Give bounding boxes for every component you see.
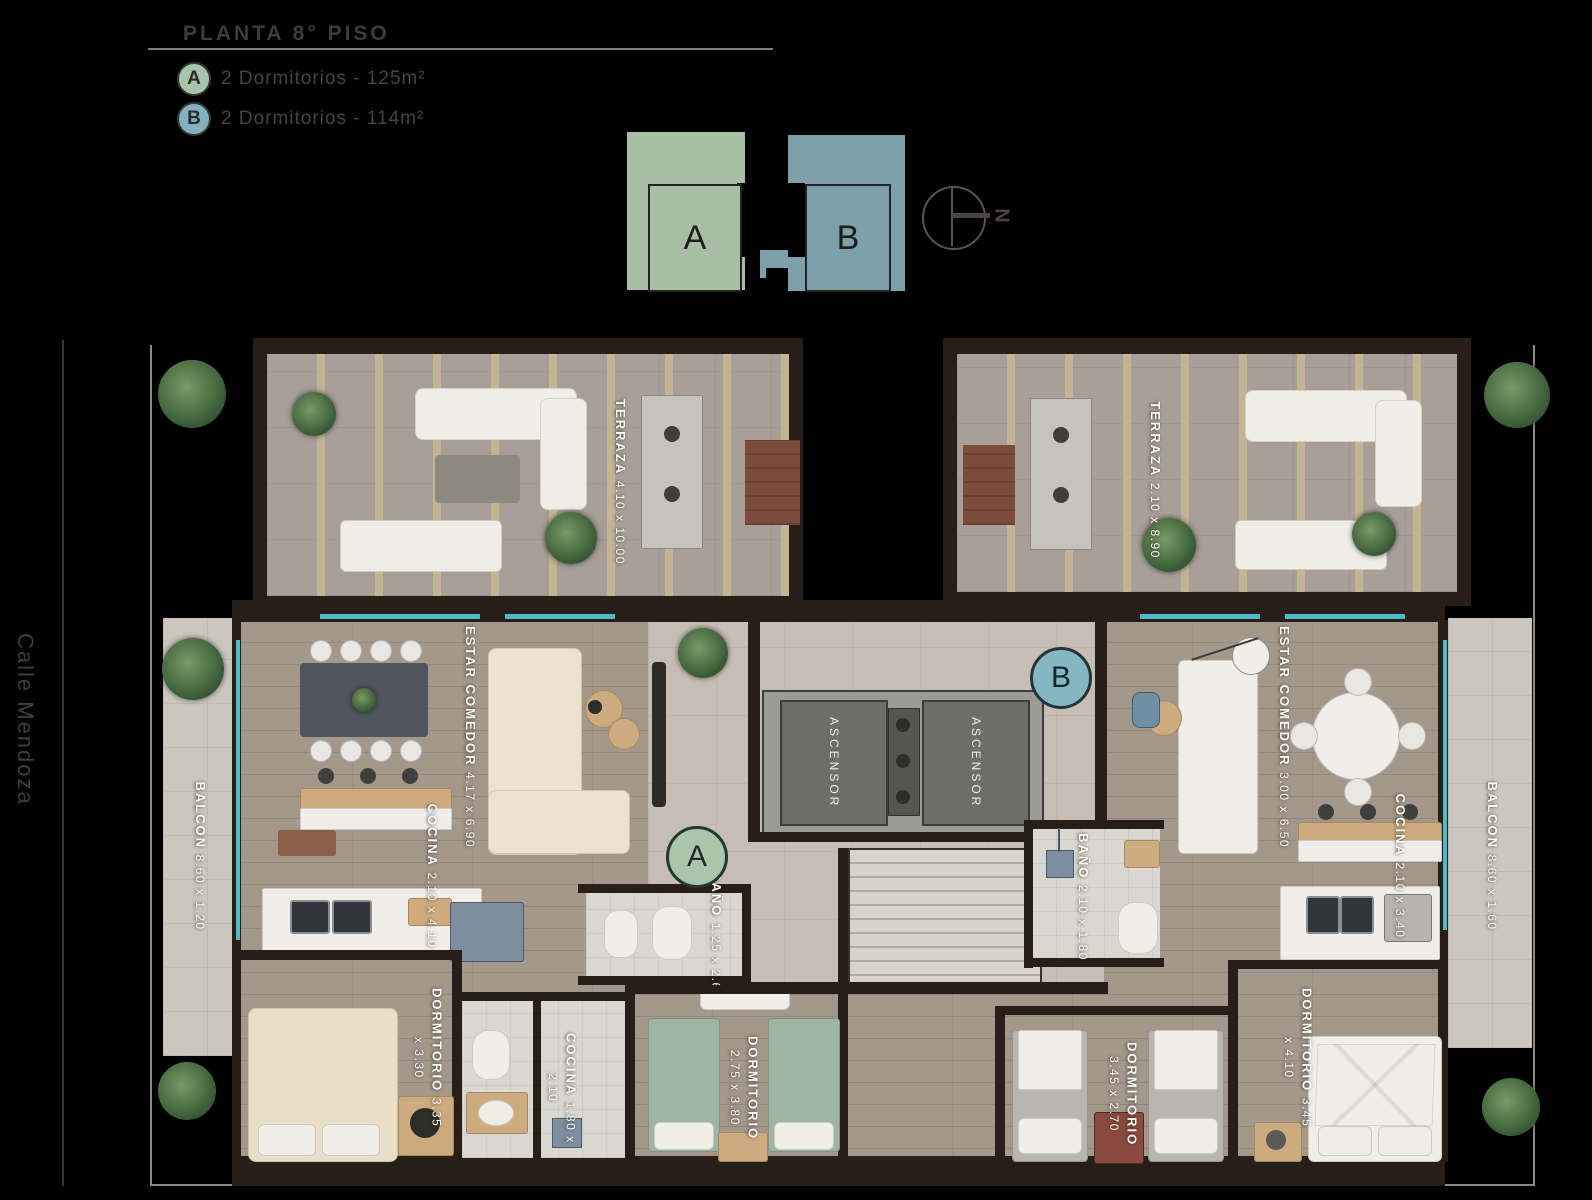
bath-b-wall-bottom (1024, 958, 1164, 967)
plant-icon (545, 512, 597, 564)
sofa-b (1178, 660, 1258, 854)
chair-icon (1344, 778, 1372, 806)
pillow (258, 1124, 316, 1156)
sink-icon (1306, 896, 1340, 934)
pillow (1154, 1118, 1218, 1154)
chair-icon (400, 640, 422, 662)
pillow (1318, 1126, 1372, 1156)
keyplan-core-notch2 (737, 183, 805, 257)
chair-icon (1290, 722, 1318, 750)
chair-icon (310, 740, 332, 762)
room-label-terraza-b: TERRAZA 2.10 x 8.90 (1146, 401, 1164, 559)
keyplan-unit-a-room: A (648, 184, 742, 292)
kitchen-a-counter-accent (278, 830, 336, 856)
chair-icon (370, 640, 392, 662)
chair-icon (310, 640, 332, 662)
window-glass-right (1443, 640, 1447, 930)
chair-icon (340, 640, 362, 662)
bed-b2-quilt (1315, 1044, 1436, 1126)
machinery-pulley-icon (896, 754, 910, 768)
room-label-dormitorio-a2: DORMITORIO 2.75 x 3.80 (726, 1032, 761, 1144)
terrace-a-table (435, 455, 520, 503)
pillow (1018, 1118, 1082, 1154)
stool-icon (360, 768, 376, 784)
bbq-burner-icon (1053, 487, 1069, 503)
legend-marker-b: B (177, 102, 211, 136)
elevator-cab-1: ASCENSOR (780, 700, 888, 826)
terrace-a-sofa-3 (340, 520, 502, 572)
pillow (1378, 1126, 1432, 1156)
table-plant-icon (352, 688, 376, 712)
room-label-estar-b: ESTAR COMEDOR 3.00 x 6.50 (1275, 626, 1293, 848)
window-glass (320, 614, 480, 619)
plant-icon (1482, 1078, 1540, 1136)
window-glass (1285, 614, 1405, 619)
north-arrow-hline (952, 213, 990, 218)
toilet-icon (472, 1030, 510, 1080)
shower-head-icon (1046, 850, 1074, 878)
room-label-bano-a: BAÑO 1.25 x 2.60 (707, 871, 725, 999)
stool-icon (402, 768, 418, 784)
side-table-a (608, 718, 640, 750)
room-label-dormitorio-b2: DORMITORIO 3.45 x 4.10 (1280, 987, 1315, 1129)
room-label-cocina-small: COCINA 1.80 x 2.10 (544, 1032, 579, 1144)
bedroom-b1-wall-left (995, 1006, 1005, 1162)
core-wall-under-elevators (748, 832, 1048, 842)
terrace-b-bbq (1030, 398, 1092, 550)
machinery-pulley-icon (896, 718, 910, 732)
lamp-icon (1266, 1130, 1286, 1150)
pillow (322, 1124, 380, 1156)
street-edge-line (62, 340, 64, 1186)
basin-icon (478, 1100, 514, 1126)
bbq-burner-icon (1053, 427, 1069, 443)
plant-icon (1484, 362, 1550, 428)
plant-icon (158, 1062, 216, 1120)
terrace-a-bbq (641, 395, 703, 549)
stair-wall (838, 848, 848, 986)
legend-item-b: B 2 Dormitorios - 114m² (177, 102, 424, 136)
page-title: PLANTA 8° PISO (183, 22, 390, 46)
unit-marker-b: B (1030, 647, 1092, 709)
bath-b-wall-top (1024, 820, 1164, 829)
ensuite-wall-right (625, 985, 635, 1162)
bedroom-b1-wall-top (995, 1006, 1237, 1015)
stool-icon (1318, 804, 1334, 820)
shower-pipe (1058, 828, 1060, 852)
bidet-icon (604, 910, 638, 958)
title-underline (148, 48, 773, 50)
sink-icon (332, 900, 372, 934)
bed-b1-cover-2 (1154, 1030, 1218, 1090)
core-wall-left (748, 620, 760, 838)
floor-plan-canvas: PLANTA 8° PISO A 2 Dormitorios - 125m² B… (0, 0, 1592, 1200)
stairs (848, 848, 1042, 990)
floor-lamp-icon (588, 700, 602, 714)
room-label-balcon-a: BALCON 8.60 x 1.20 (191, 781, 209, 930)
plant-icon (292, 392, 336, 436)
unit-marker-a: A (666, 826, 728, 888)
bath-a-wall-right (742, 884, 751, 985)
room-label-cocina-a: COCINA 2.10 x 4.10 (423, 804, 441, 949)
stool-icon (1360, 804, 1376, 820)
north-label: N (990, 208, 1013, 222)
chair-icon (1398, 722, 1426, 750)
keyplan-unit-b-room: B (805, 184, 891, 292)
bedroom-a2-wall-top (625, 985, 847, 994)
ensuite-wall-mid (533, 1000, 541, 1160)
lot-line-left (150, 345, 152, 1186)
plant-icon (678, 628, 728, 678)
room-label-dormitorio-a1: DORMITORIO 3.35 x 3.30 (410, 987, 445, 1129)
bbq-burner-icon (664, 426, 680, 442)
ensuite-wall-top (455, 992, 633, 1001)
toilet-icon (1118, 902, 1158, 954)
room-label-bano-b: BAÑO 2.10 x 1.80 (1074, 833, 1092, 961)
legend-item-a: A 2 Dormitorios - 125m² (177, 62, 426, 96)
dining-table-b (1312, 692, 1400, 780)
window-glass (505, 614, 615, 619)
window-glass (1140, 614, 1260, 619)
pillow (774, 1122, 834, 1150)
bedroom-a-wall-top (232, 950, 460, 960)
terrace-a-sofa-2 (540, 398, 587, 510)
room-label-cocina-b: COCINA 2.10 x 3.40 (1391, 794, 1409, 939)
keyplan-notch3 (766, 268, 788, 292)
bedroom-b2-wall-top (1228, 960, 1445, 969)
tv-panel-a (652, 662, 666, 807)
sink-icon (1340, 896, 1374, 934)
sofa-a-chaise (488, 790, 630, 854)
window-glass-left (236, 640, 240, 940)
chair-icon (400, 740, 422, 762)
bed-b1-cover-1 (1018, 1030, 1082, 1090)
terrace-b-sofa-2 (1375, 400, 1422, 507)
north-arrow-icon (922, 186, 986, 250)
elevator-cab-2: ASCENSOR (922, 700, 1030, 826)
terrace-b-brick-column (963, 445, 1015, 525)
kitchen-b-island (1298, 840, 1442, 862)
plant-icon (1352, 512, 1396, 556)
machinery-pulley-icon (896, 790, 910, 804)
stool-icon (318, 768, 334, 784)
pillow (654, 1122, 714, 1150)
terrace-a-brick-column (745, 440, 800, 525)
chair-icon (1344, 668, 1372, 696)
room-label-balcon-b: BALCON 8.60 x 1.60 (1483, 781, 1501, 930)
room-label-estar-a: ESTAR COMEDOR 4.17 x 6.90 (461, 626, 479, 848)
lot-line-right (1533, 345, 1535, 1186)
legend-marker-a: A (177, 62, 211, 96)
room-label-terraza-a: TERRAZA 4.10 x 10.00 (611, 399, 629, 565)
legend-label-a: 2 Dormitorios - 125m² (221, 68, 426, 90)
plant-icon (158, 360, 226, 428)
vanity-b (1124, 840, 1160, 868)
bedroom-b-wall-mid (1228, 960, 1238, 1162)
keyplan-b-letter: B (837, 219, 860, 258)
keyplan-a-letter: A (684, 219, 707, 258)
lounge-chair-b (1132, 692, 1160, 728)
street-label: Calle Mendoza (12, 633, 38, 893)
room-label-dormitorio-b1: DORMITORIO 3.45 x 2.70 (1105, 1041, 1140, 1147)
plant-icon (162, 638, 224, 700)
toilet-icon (652, 906, 692, 960)
chair-icon (370, 740, 392, 762)
bbq-burner-icon (664, 486, 680, 502)
chair-icon (340, 740, 362, 762)
legend-label-b: 2 Dormitorios - 114m² (221, 108, 424, 130)
sink-icon (290, 900, 330, 934)
bath-b-wall-left (1024, 820, 1033, 968)
